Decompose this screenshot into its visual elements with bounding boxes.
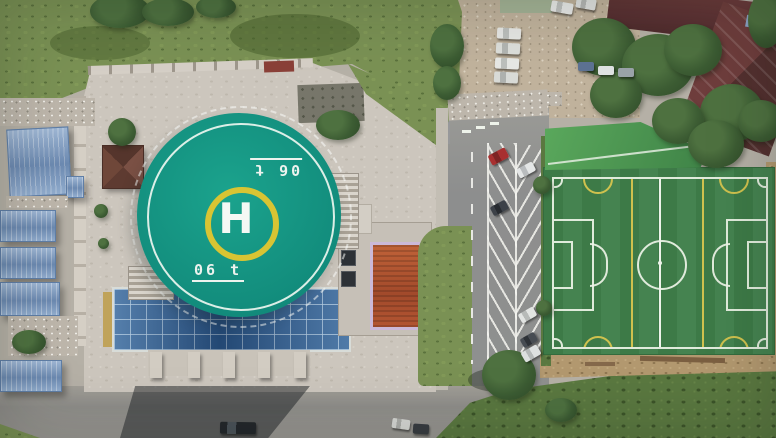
lawn-verge [418,226,472,386]
bush-bottom [545,398,577,422]
planter-trees [316,110,360,140]
corner-arc [757,338,768,349]
atrium-yellow-edge [103,292,112,347]
construction-debris [6,196,68,208]
tree-cluster-topright [664,24,722,76]
mini-pitch-arc [583,336,613,349]
goal-area-right [747,241,768,289]
bush [94,204,108,218]
mini-pitch-line [702,179,704,347]
construction-debris [0,98,95,126]
blue-shed-roof [6,126,71,197]
car-white-gravel-row [496,42,521,54]
mini-pitch-arc [719,177,749,194]
debris-pile [447,89,548,120]
trees-by-sheds [12,330,46,354]
blue-shed-roof [0,247,56,279]
center-spot [658,261,662,265]
helipad-letter: H [205,187,267,249]
car-white-gravel-row [497,27,522,39]
roof-vent [341,271,356,287]
buttress [258,352,270,378]
car-under-trees [618,68,634,77]
car-dark-shadow-road [220,422,256,435]
bush-left-of-lot [433,66,461,100]
corner-arc [552,177,563,188]
car-under-trees [578,62,594,71]
bush [98,238,109,249]
blue-shed-roof [66,176,84,198]
buttress [150,352,162,378]
road-marking [462,130,471,133]
penalty-arc-right [712,243,730,287]
compound-gate-red [264,60,294,72]
corner-arc [552,338,563,349]
grass-dark-patch [230,14,360,58]
aerial-photo-scene: H 06 t 06 t [0,0,776,438]
road-marking [490,122,499,125]
wood-plank [585,362,615,366]
football-pitch [543,167,775,355]
penalty-arc-left [590,243,608,287]
goal-area-left [552,241,573,289]
mini-pitch-line [631,179,633,347]
blue-shed-roof [0,360,62,392]
grass-dark-patch [50,26,150,60]
annex-orange-roof [370,242,422,330]
buttress [188,352,200,378]
roadside-tree [533,176,551,194]
car-white-gravel-row [495,57,520,69]
car-under-trees [598,66,614,75]
bush-left-of-lot [430,24,464,68]
compound-wall-west [74,96,86,346]
roadside-tree [536,300,552,316]
weight-marking-south: 06 t [192,262,244,282]
tree-cluster-topright [688,120,744,168]
blue-shed-roof [0,210,56,242]
buttress [294,352,306,378]
weight-marking-north: 06 t [250,158,302,178]
corner-arc [757,177,768,188]
tree-cluster-topright [738,100,776,142]
blue-shed-roof [0,282,60,316]
lane-dash-line [471,152,473,364]
buttress [223,352,235,378]
pitch-boundary [552,177,768,349]
car-white-gravel-row [494,71,519,83]
mini-pitch-arc [719,336,749,349]
building-south-facade [148,350,310,376]
road-marking [476,126,485,129]
pavilion-tree [108,118,136,146]
parking-bays-left-column [487,143,517,365]
car-bottom-left [413,423,430,434]
green-concrete-apron [500,0,552,13]
mini-pitch-arc [583,177,613,194]
tree-cluster-topright [590,72,642,118]
center-circle [637,240,687,290]
white-sacks [544,92,562,106]
